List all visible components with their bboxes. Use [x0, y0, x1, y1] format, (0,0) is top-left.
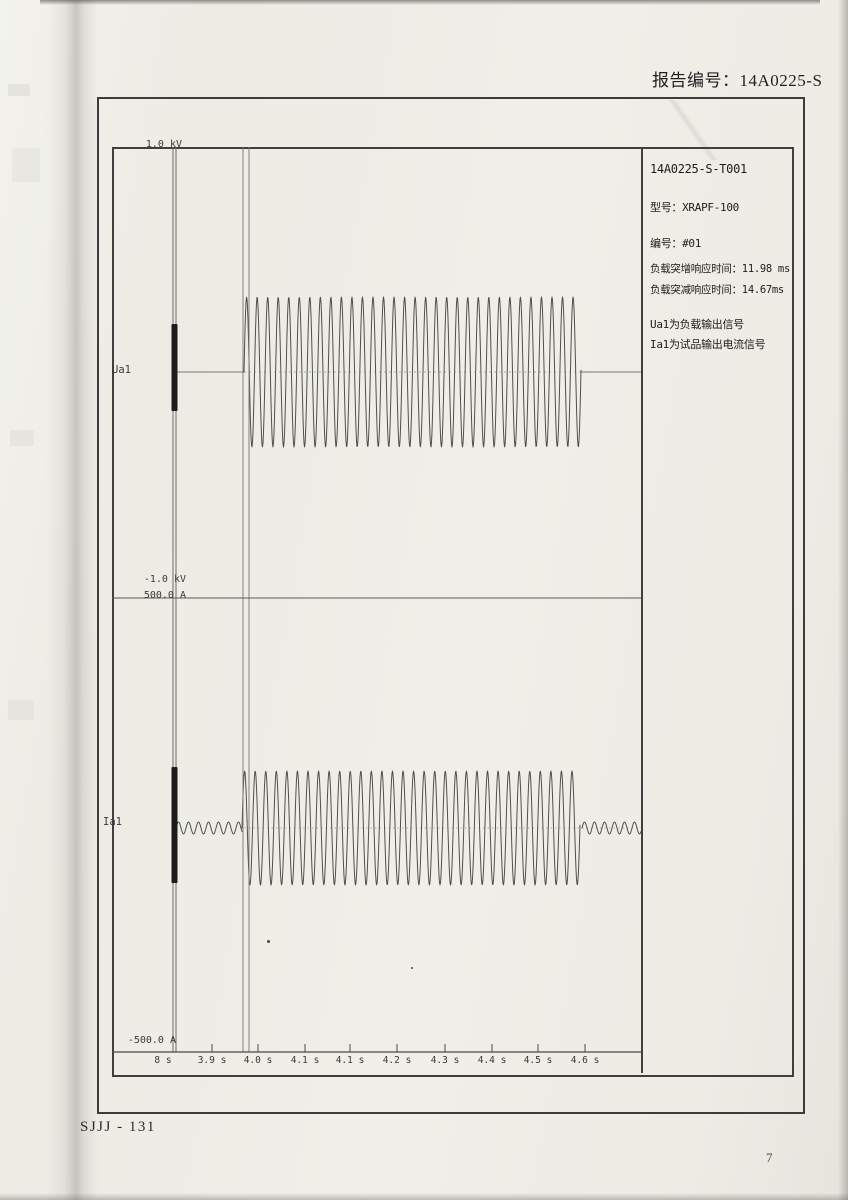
x-tick-label: 4.3 s: [423, 1055, 467, 1066]
x-tick-label: 4.1 s: [283, 1055, 327, 1066]
scan-ghost-mark: [10, 430, 34, 446]
y-scale-top-current: 500.0 A: [102, 590, 186, 601]
page-number: 7: [766, 1150, 773, 1166]
scan-edge-top: [40, 0, 820, 5]
scan-ghost-mark: [8, 84, 30, 96]
channel-label-ia1: Ia1: [103, 816, 122, 828]
info-unit-no: 编号：#01: [650, 235, 790, 251]
x-tick-label: 4.2 s: [375, 1055, 419, 1066]
info-test-id: 14A0225-S-T001: [650, 162, 790, 176]
info-note-ia1: Ia1为试品输出电流信号: [650, 336, 790, 352]
oscillogram-plot: [112, 147, 641, 1069]
x-tick-label: 8 s: [141, 1055, 185, 1066]
y-scale-bottom-current: -500.0 A: [92, 1035, 176, 1046]
info-note-ua1: Ua1为负载输出信号: [650, 316, 790, 332]
x-tick-label: 4.5 s: [516, 1055, 560, 1066]
x-tick-label: 4.4 s: [470, 1055, 514, 1066]
binding-fold-shadow: [46, 0, 98, 1200]
scan-ghost-mark: [8, 700, 34, 720]
y-scale-top-voltage: 1.0 kV: [112, 139, 182, 150]
x-tick-label: 4.0 s: [236, 1055, 280, 1066]
x-tick-label: 4.1 s: [328, 1055, 372, 1066]
x-tick-label: 4.6 s: [563, 1055, 607, 1066]
chart-panel-divider: [641, 147, 643, 1073]
y-scale-bottom-voltage: -1.0 kV: [102, 574, 186, 585]
scan-edge-bottom: [0, 1193, 848, 1200]
report-number: 报告编号：14A0225-S: [652, 66, 842, 91]
info-fall-response: 负载突减响应时间：14.67ms: [650, 282, 790, 297]
scan-edge-right: [838, 0, 848, 1200]
scanned-report-page: 报告编号：14A0225-S 1.0 kV -1.0 kV 500.0 A -5…: [0, 0, 848, 1200]
footer-doc-code: SJJJ - 131: [80, 1119, 156, 1136]
scan-ghost-mark: [12, 148, 40, 182]
info-model: 型号：XRAPF-100: [650, 199, 790, 215]
channel-label-ua1: Ua1: [112, 364, 131, 376]
x-tick-label: 3.9 s: [190, 1055, 234, 1066]
info-rise-response: 负载突增响应时间：11.98 ms: [650, 261, 790, 276]
